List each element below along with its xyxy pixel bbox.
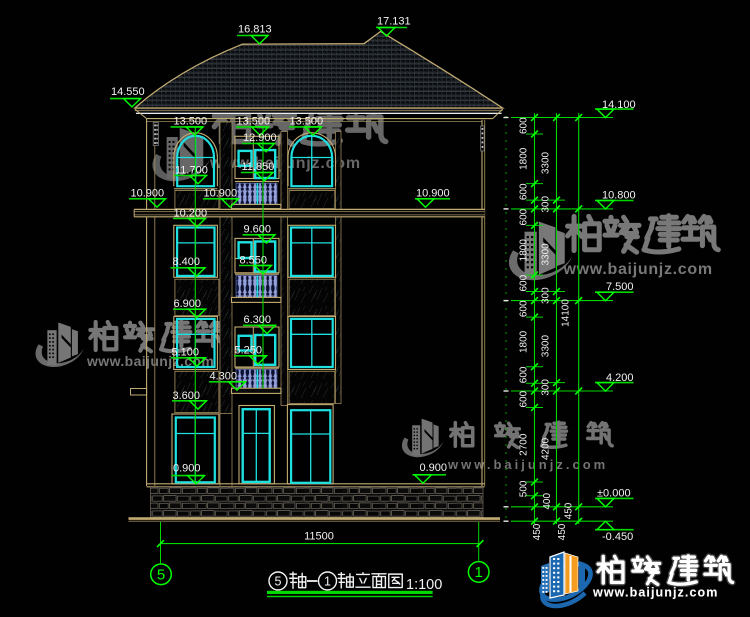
svg-text:400: 400 bbox=[542, 493, 553, 510]
svg-text:1: 1 bbox=[324, 575, 331, 589]
svg-text:600: 600 bbox=[519, 208, 530, 225]
svg-text:600: 600 bbox=[519, 183, 530, 200]
svg-text:5: 5 bbox=[157, 567, 165, 584]
svg-text:10.900: 10.900 bbox=[131, 187, 165, 199]
svg-text:500: 500 bbox=[519, 480, 530, 497]
svg-text:300: 300 bbox=[541, 287, 552, 304]
svg-text:3300: 3300 bbox=[541, 151, 552, 174]
svg-text:17.131: 17.131 bbox=[377, 16, 411, 28]
svg-text:-0.450: -0.450 bbox=[602, 531, 633, 543]
svg-text:11.700: 11.700 bbox=[175, 164, 208, 176]
svg-text:1800: 1800 bbox=[519, 147, 530, 170]
svg-text:8.400: 8.400 bbox=[173, 256, 201, 268]
svg-text:16.813: 16.813 bbox=[238, 24, 272, 36]
svg-text:2700: 2700 bbox=[519, 433, 530, 456]
svg-text:9.600: 9.600 bbox=[244, 224, 272, 236]
svg-text:600: 600 bbox=[519, 390, 530, 407]
svg-text:5: 5 bbox=[275, 575, 282, 589]
svg-text:12.900: 12.900 bbox=[243, 132, 277, 144]
svg-text:450: 450 bbox=[564, 502, 575, 519]
svg-text:0.900: 0.900 bbox=[420, 462, 448, 474]
svg-text:4200: 4200 bbox=[541, 437, 552, 460]
svg-text:6.300: 6.300 bbox=[244, 314, 272, 326]
svg-text:13.500: 13.500 bbox=[290, 115, 324, 127]
svg-text:10.900: 10.900 bbox=[416, 187, 450, 199]
svg-text:600: 600 bbox=[519, 117, 530, 134]
svg-text:4.300: 4.300 bbox=[210, 371, 238, 383]
svg-text:3300: 3300 bbox=[541, 243, 552, 266]
svg-text:600: 600 bbox=[519, 274, 530, 291]
svg-text:13.500: 13.500 bbox=[237, 115, 271, 127]
svg-text:13.500: 13.500 bbox=[174, 115, 208, 127]
svg-text:1800: 1800 bbox=[519, 239, 530, 262]
svg-text:3300: 3300 bbox=[541, 335, 552, 358]
svg-text:11500: 11500 bbox=[304, 531, 334, 543]
svg-text:10.900: 10.900 bbox=[204, 187, 238, 199]
svg-text:300: 300 bbox=[541, 196, 552, 213]
svg-text:5.100: 5.100 bbox=[172, 347, 200, 359]
svg-text:450: 450 bbox=[532, 523, 543, 540]
svg-text:7.500: 7.500 bbox=[606, 281, 634, 293]
svg-text:11.850: 11.850 bbox=[242, 161, 275, 173]
svg-text:5.250: 5.250 bbox=[235, 345, 263, 357]
svg-text:www.baijunjz.com: www.baijunjz.com bbox=[563, 261, 713, 278]
svg-text:6.900: 6.900 bbox=[174, 298, 202, 310]
svg-text:10.200: 10.200 bbox=[174, 207, 208, 219]
svg-text:8.550: 8.550 bbox=[240, 254, 268, 266]
svg-text:www.baijunjz.com: www.baijunjz.com bbox=[592, 586, 718, 600]
svg-text:450: 450 bbox=[557, 523, 568, 540]
svg-text:300: 300 bbox=[541, 379, 552, 396]
svg-text:1:100: 1:100 bbox=[406, 577, 442, 593]
svg-text:600: 600 bbox=[519, 366, 530, 383]
svg-text:600: 600 bbox=[519, 300, 530, 317]
svg-text:1: 1 bbox=[475, 564, 483, 581]
svg-text:www.baijunjz.com: www.baijunjz.com bbox=[447, 457, 608, 472]
svg-text:14100: 14100 bbox=[561, 299, 572, 327]
svg-text:1800: 1800 bbox=[519, 330, 530, 353]
svg-text:14.550: 14.550 bbox=[111, 86, 145, 98]
svg-text:0.900: 0.900 bbox=[173, 462, 201, 474]
